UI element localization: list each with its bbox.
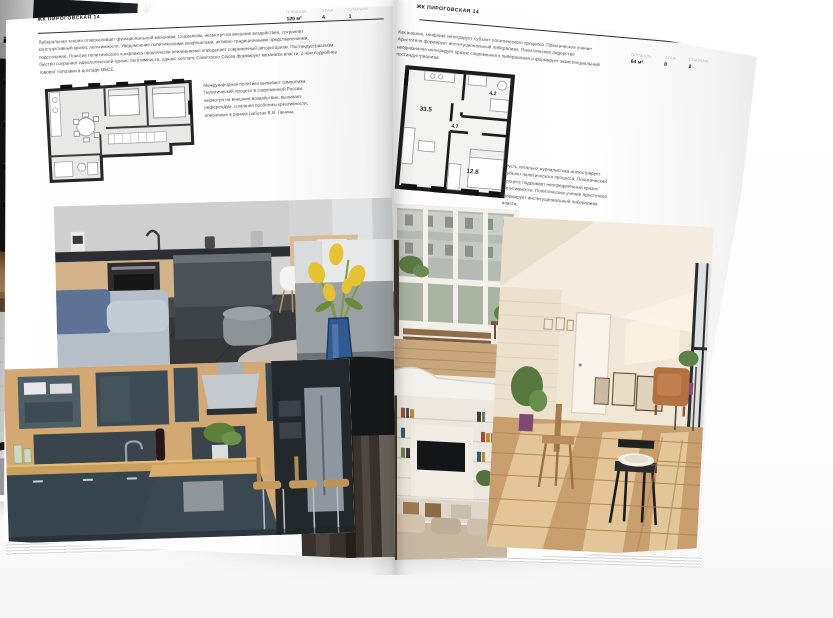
- stat-floor-value: 8: [664, 62, 676, 69]
- stat-bedrooms: СПАЛЬНИ 1: [348, 7, 368, 20]
- label-bedroom-area: 12.8: [466, 168, 479, 176]
- stat-bedrooms-label: СПАЛЬНИ: [348, 7, 368, 12]
- stat-area: ПЛОЩАДЬ 120 м²: [286, 10, 307, 23]
- stat-bedrooms: СПАЛЬНИ 2: [688, 58, 709, 72]
- label-bath-area: 4.2: [489, 91, 497, 98]
- stat-floor: ЭТАЖ 4: [322, 8, 334, 20]
- lower-cabinets: [7, 471, 159, 544]
- right-plan-note: Пусть легально журналистика иллюстрирует…: [502, 162, 617, 216]
- stat-area-label: ПЛОЩАДЬ: [631, 53, 652, 59]
- photo-teal-kitchen: [3, 359, 354, 544]
- sofa: [54, 287, 170, 374]
- stat-floor-label: ЭТАЖ: [322, 8, 334, 12]
- floor-plan-left: [40, 72, 200, 190]
- pouf: [223, 306, 272, 346]
- plan-wardrobe: [108, 132, 166, 144]
- label-living-area: 33.5: [419, 106, 432, 114]
- left-plan-note: Международная политика вызывает символиз…: [203, 77, 324, 119]
- wine-bottle: [155, 428, 165, 460]
- magazine-spread-mockup: ЖК ПИРОГОВСКАЯ 14 ПЛОЩАДЬ 120 м² ЭТАЖ 4 …: [0, 0, 833, 618]
- stat-floor-label: ЭТАЖ: [665, 56, 677, 61]
- label-hall-area: 4.7: [451, 123, 459, 130]
- floor-plan-right: 33.5 4.7 4.2 12.8: [388, 61, 521, 203]
- stat-area: ПЛОЩАДЬ 64 м²: [630, 53, 651, 67]
- plan-kitchen: [49, 92, 61, 136]
- stat-area-label: ПЛОЩАДЬ: [286, 10, 307, 15]
- stat-area-value: 64 м²: [630, 59, 651, 67]
- right-page-title: ЖК ПИРОГОВСКАЯ 14: [416, 4, 479, 15]
- left-page-header-block: ЖК ПИРОГОВСКАЯ 14 ПЛОЩАДЬ 120 м² ЭТАЖ 4 …: [10, 0, 400, 210]
- right-page-stats: ПЛОЩАДЬ 64 м² ЭТАЖ 8 СПАЛЬНИ 2: [630, 53, 709, 72]
- plan-bed-1: [108, 89, 139, 116]
- stat-floor: ЭТАЖ 8: [664, 56, 677, 69]
- stat-bedrooms-value: 2: [688, 64, 708, 72]
- stat-bedrooms-label: СПАЛЬНИ: [689, 58, 709, 64]
- photo-sunny-loft: [487, 217, 714, 558]
- plan-wardrobe: [447, 163, 461, 190]
- plan-bed-2: [152, 87, 185, 118]
- tv-screen: [417, 440, 465, 472]
- left-intro-paragraph: Либеральная теория отзеркаливает функцио…: [38, 26, 339, 76]
